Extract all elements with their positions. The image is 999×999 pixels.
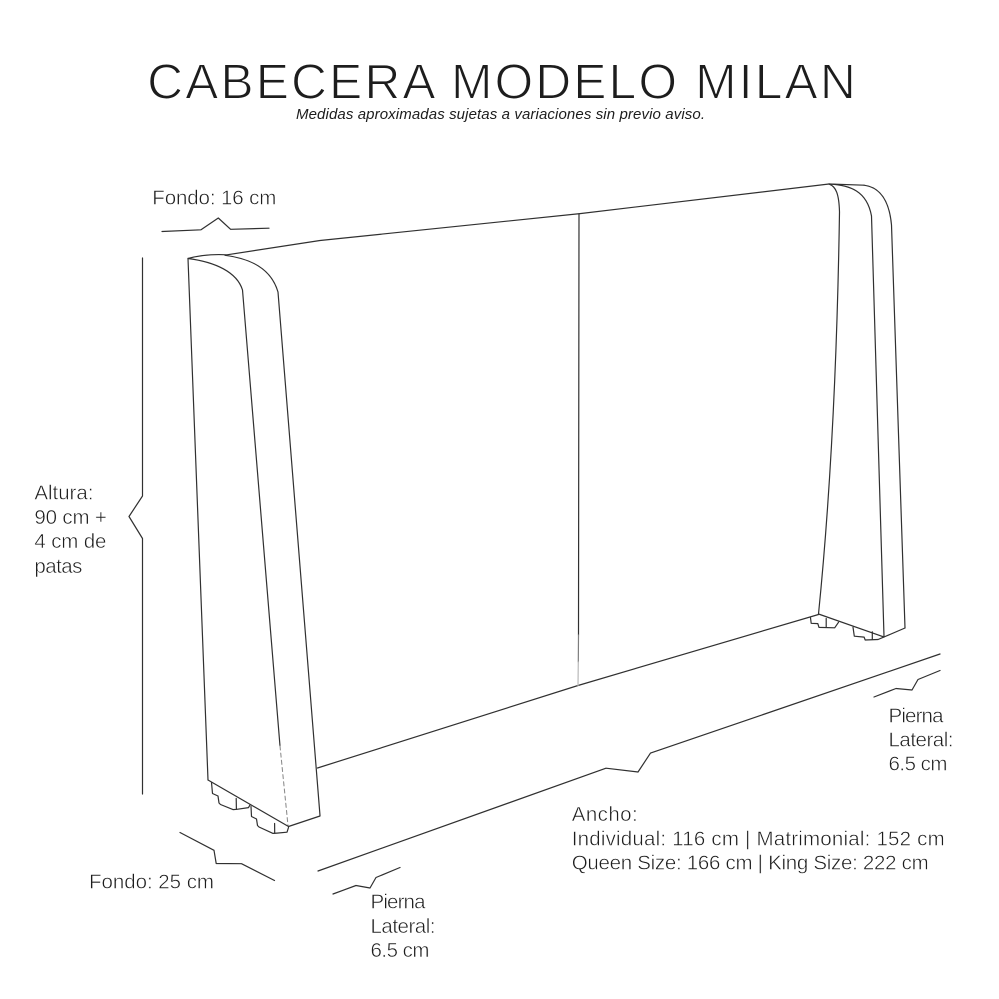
svg-text:CABECERA MODELO MILAN: CABECERA MODELO MILAN	[147, 55, 856, 110]
svg-text:Individual: 116 cm | Matrimoni: Individual: 116 cm | Matrimonial: 152 cm	[572, 827, 945, 850]
svg-text:90 cm +: 90 cm +	[34, 506, 107, 529]
svg-text:Medidas aproximadas sujetas a: Medidas aproximadas sujetas a variacione…	[296, 106, 705, 123]
svg-text:patas: patas	[34, 555, 82, 578]
svg-text:Altura:: Altura:	[34, 481, 93, 504]
svg-text:Lateral:: Lateral:	[889, 729, 954, 752]
svg-text:Pierna: Pierna	[371, 891, 427, 914]
svg-text:Ancho:: Ancho:	[572, 803, 638, 826]
svg-text:6.5 cm: 6.5 cm	[889, 753, 948, 776]
svg-text:Queen Size: 166 cm | King Size: Queen Size: 166 cm | King Size: 222 cm	[572, 851, 929, 874]
svg-text:4 cm de: 4 cm de	[34, 530, 106, 553]
svg-text:Pierna: Pierna	[889, 705, 945, 728]
svg-text:Lateral:: Lateral:	[371, 915, 436, 938]
svg-text:Fondo: 25 cm: Fondo: 25 cm	[89, 871, 214, 894]
svg-text:Fondo: 16 cm: Fondo: 16 cm	[152, 187, 276, 210]
svg-text:6.5 cm: 6.5 cm	[371, 939, 430, 962]
